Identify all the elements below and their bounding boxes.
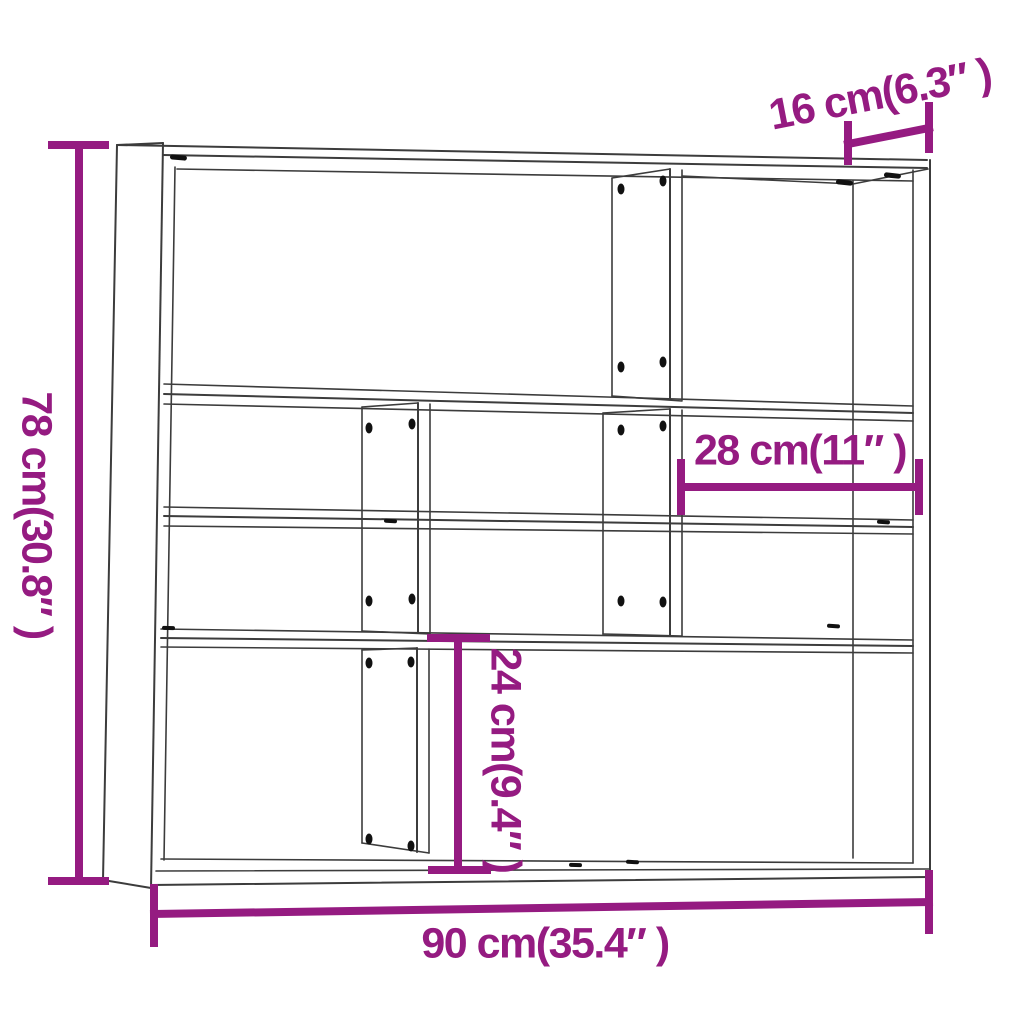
dimension-label-compartment-height: 24 cm(9.4″ ) (481, 648, 530, 873)
dimension-label-width: 90 cm(35.4″ ) (421, 920, 668, 969)
dimension-label-compartment-width: 28 cm(11″ ) (694, 427, 906, 476)
compartment-height-dimension-line (431, 638, 487, 870)
mount-bracket-marks (162, 154, 901, 867)
dimension-label-height: 78 cm(30.8″ ) (12, 391, 61, 638)
product-dimension-diagram: 16 cm(6.3″ ) 78 cm(30.8″ ) 28 cm(11″ ) 2… (0, 0, 1024, 1024)
